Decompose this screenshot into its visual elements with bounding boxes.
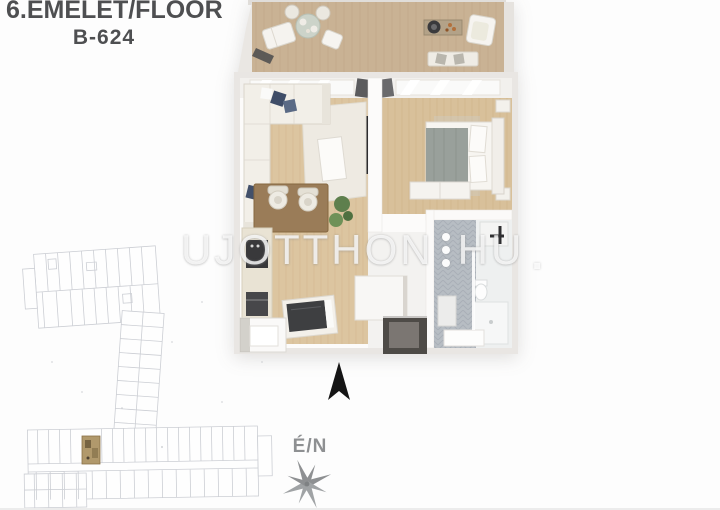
compass-label: É/N — [276, 436, 344, 458]
compass: É/N — [272, 436, 344, 510]
bath-cabinet — [480, 222, 508, 246]
dining-chair — [298, 188, 318, 211]
unit-title: B-624 — [6, 26, 202, 50]
terrace-chair — [285, 5, 299, 19]
bed-pillow — [469, 155, 487, 182]
entry-door — [389, 322, 419, 348]
counter-block — [355, 276, 407, 320]
floor-title: 6.EMELET/FLOOR — [6, 0, 202, 25]
led-strip — [472, 250, 475, 330]
site-plan-bottom-wing — [23, 426, 272, 508]
terrace-chair — [316, 6, 330, 20]
dining-chair — [268, 186, 288, 209]
terrace-bench — [428, 52, 478, 66]
terrace — [238, 0, 514, 72]
nightstand — [496, 100, 510, 112]
highlighted-unit — [82, 436, 100, 464]
bed-blanket — [426, 128, 468, 184]
site-plan — [22, 242, 294, 508]
coffee-table — [318, 137, 347, 182]
site-plan-svg — [22, 242, 294, 508]
site-plan-mid-wing — [113, 311, 164, 440]
terrace-armchair — [466, 14, 496, 46]
page: { "header": { "floor_label": "6.EMELET/F… — [0, 0, 720, 510]
toilet — [475, 284, 487, 300]
bathroom — [426, 210, 512, 348]
bed-headboard — [492, 118, 504, 194]
bed-pillow — [469, 125, 487, 152]
pillow — [283, 99, 297, 113]
vanity — [438, 296, 456, 326]
terrace-console — [424, 20, 462, 35]
entry-door-recess — [383, 316, 427, 354]
header: 6.EMELET/FLOOR B-624 — [6, 0, 202, 50]
compass-rose-icon — [275, 456, 341, 510]
north-arrow-icon — [322, 358, 358, 404]
watermark-suffix: . — [531, 234, 543, 276]
